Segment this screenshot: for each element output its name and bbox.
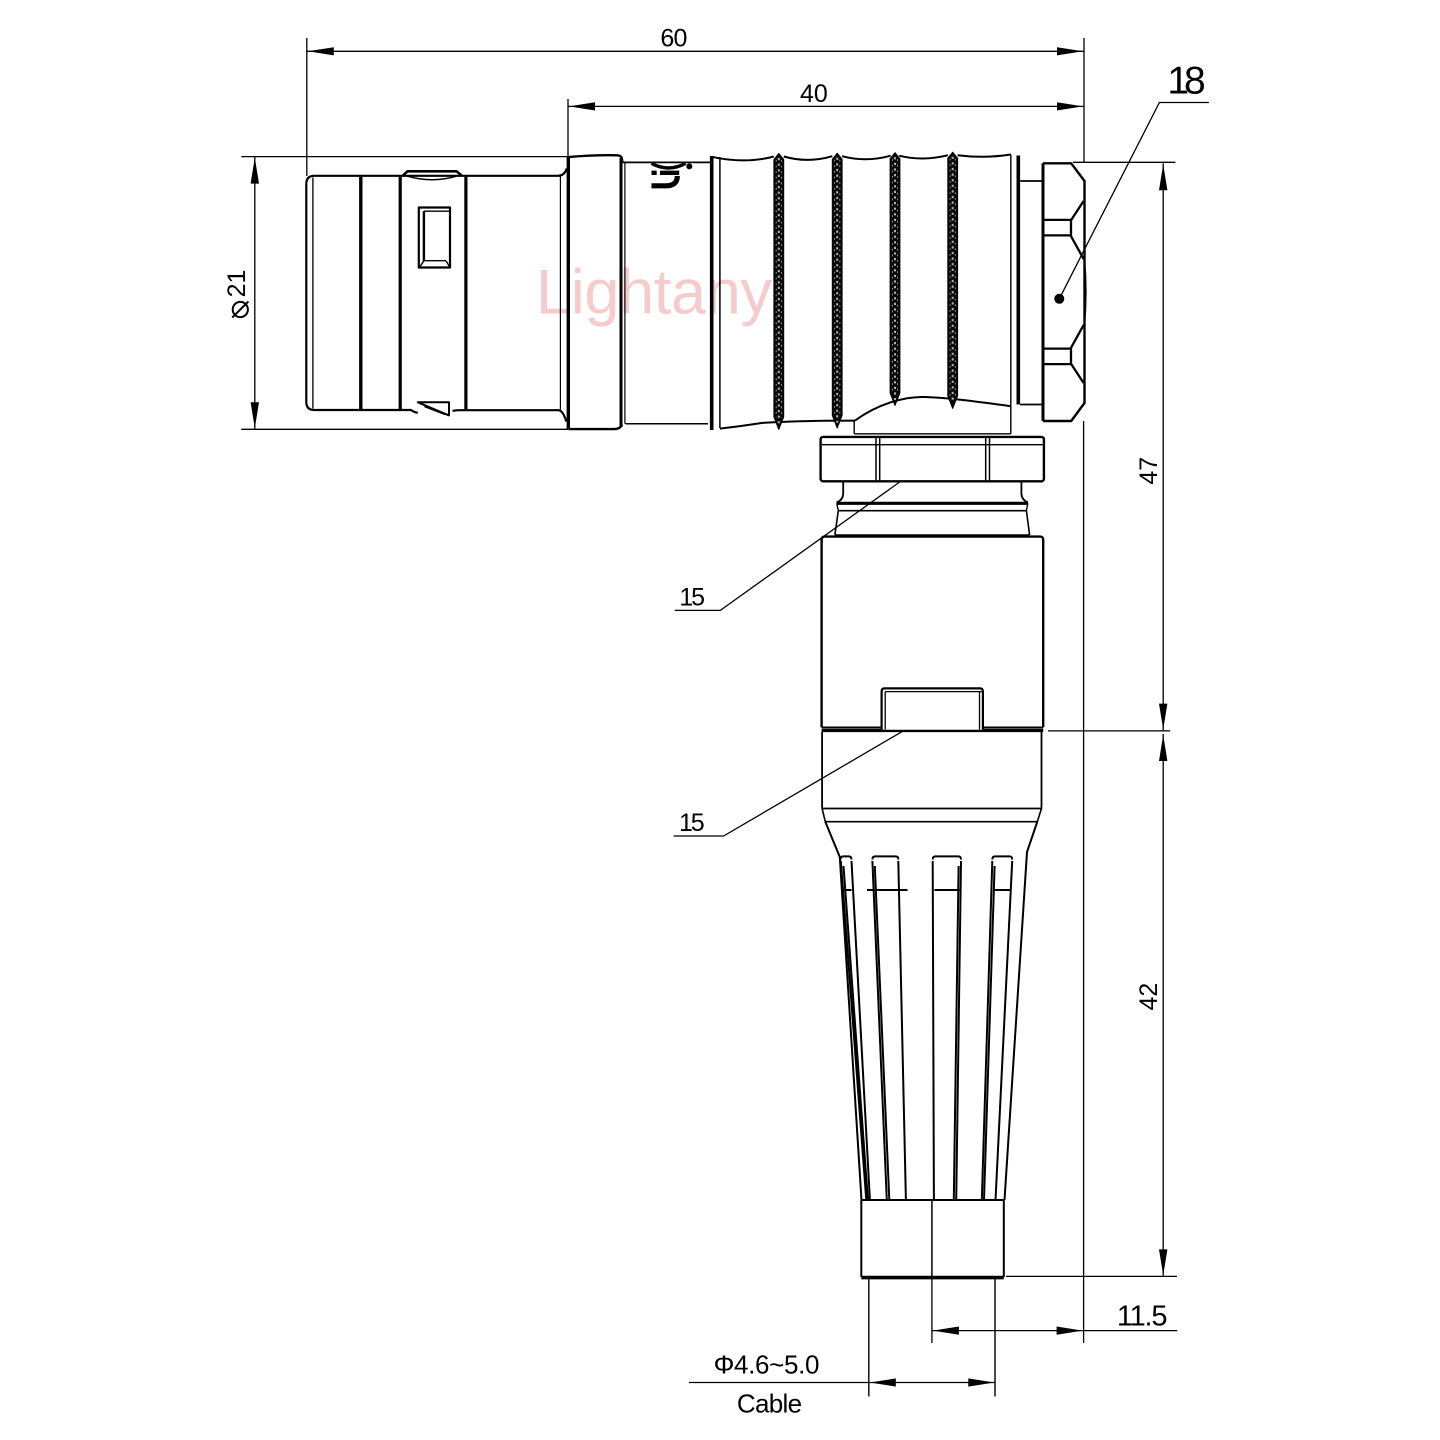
svg-text:60: 60 xyxy=(660,25,687,53)
svg-text:15: 15 xyxy=(679,809,705,837)
svg-text:18: 18 xyxy=(1167,60,1205,103)
svg-text:Φ4.6~5.0: Φ4.6~5.0 xyxy=(714,1350,820,1380)
svg-text:Cable: Cable xyxy=(737,1388,802,1418)
svg-text:11.5: 11.5 xyxy=(1117,1301,1168,1333)
svg-text:21: 21 xyxy=(223,270,251,298)
svg-text:42: 42 xyxy=(1135,983,1163,1011)
svg-text:Lightany: Lightany xyxy=(536,258,773,328)
svg-text:40: 40 xyxy=(800,80,828,108)
svg-text:15: 15 xyxy=(679,583,705,611)
svg-text:47: 47 xyxy=(1135,457,1163,485)
